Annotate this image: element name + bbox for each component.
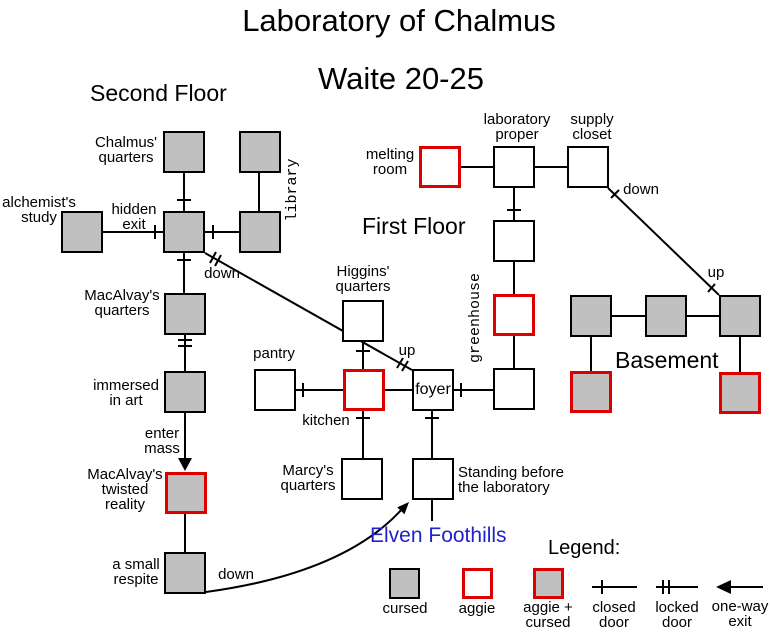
- room-label-standing-before-laboratory: Standing before the laboratory: [458, 465, 578, 495]
- edge-chalmus-hub: [177, 173, 191, 211]
- room-label-supply-closet: supply closet: [556, 112, 628, 142]
- room-label-greenhouse: greenhouse: [468, 263, 484, 373]
- room-label-chalmus-quarters: Chalmus' quarters: [90, 135, 162, 165]
- edge-foyer-standing: [425, 411, 439, 458]
- exit-label-respite-down: down: [213, 567, 259, 582]
- room-label-kitchen: kitchen: [299, 413, 353, 428]
- legend-label-aggie: aggie: [446, 601, 508, 616]
- mud-area-map: Laboratory of Chalmus Waite 20-25 Second…: [0, 0, 770, 632]
- map-title: Laboratory of Chalmus: [14, 4, 770, 37]
- room-basement-3: [719, 295, 761, 337]
- room-greenhouse-north: [493, 220, 535, 262]
- exit-label-closet-down: down: [618, 182, 664, 197]
- edge-pantry-kitchen: [296, 383, 343, 397]
- room-label-a-small-respite: a small respite: [100, 557, 172, 587]
- room-laboratory-proper: [493, 146, 535, 188]
- room-marcys-quarters: [341, 458, 383, 500]
- edge-macalvays-immersed-locked: [178, 335, 192, 371]
- room-greenhouse-south: [493, 368, 535, 410]
- exit-label-basement-up: up: [700, 265, 732, 280]
- room-macalvays-twisted-reality: [165, 472, 207, 514]
- room-pantry: [254, 369, 296, 411]
- edge-kitchen-marcys: [356, 411, 370, 458]
- floor-label-second: Second Floor: [90, 81, 227, 105]
- room-label-pantry: pantry: [250, 346, 298, 361]
- room-basement-2: [645, 295, 687, 337]
- room-basement-1: [570, 295, 612, 337]
- room-label-marcys-quarters: Marcy's quarters: [272, 463, 344, 493]
- room-macalvays-quarters: [164, 293, 206, 335]
- floor-label-basement: Basement: [615, 348, 719, 372]
- room-label-higgins-quarters: Higgins' quarters: [326, 264, 400, 294]
- legend-heading: Legend:: [548, 537, 620, 560]
- exit-label-second-floor-down: down: [200, 266, 244, 281]
- legend-label-one-way-exit: one-way exit: [703, 599, 770, 629]
- exit-label-enter-mass: enter mass: [126, 426, 198, 456]
- room-label-foyer: foyer: [414, 371, 452, 408]
- room-label-alchemists-study: alchemist's study: [0, 195, 78, 225]
- edge-hub-macalvays: [177, 253, 191, 293]
- legend-closed-door-symbol: [592, 580, 637, 594]
- room-basement-5: [719, 372, 761, 414]
- room-higgins-quarters: [342, 300, 384, 342]
- room-label-laboratory-proper: laboratory proper: [478, 112, 556, 142]
- room-library-upper: [239, 131, 281, 173]
- room-label-melting-room: melting room: [354, 147, 426, 177]
- room-basement-4: [570, 371, 612, 413]
- legend-swatch-aggie: [462, 568, 493, 599]
- room-label-macalvays-quarters: MacAlvay's quarters: [82, 288, 162, 318]
- legend-swatch-cursed: [389, 568, 420, 599]
- legend-label-locked-door: locked door: [646, 600, 708, 630]
- room-kitchen: [343, 369, 385, 411]
- legend-locked-door-symbol: [656, 580, 698, 594]
- edge-hub-library: [205, 225, 239, 239]
- legend-label-aggie-cursed: aggie + cursed: [511, 600, 585, 630]
- room-greenhouse: [493, 294, 535, 336]
- room-standing-before-laboratory: [412, 458, 454, 500]
- arrowhead-one-way-legend: [716, 580, 731, 594]
- legend-label-closed-door: closed door: [583, 600, 645, 630]
- edge-foyer-greenhouse-south: [454, 383, 493, 397]
- room-chalmus-quarters: [163, 131, 205, 173]
- room-hidden-exit-hub: [163, 211, 205, 253]
- arrowhead-enter-mass: [178, 458, 192, 471]
- edge-laboratory-greenhouse-north: [507, 188, 521, 220]
- room-label-library: library: [285, 140, 301, 240]
- legend-swatch-aggie-cursed: [533, 568, 564, 599]
- room-foyer: foyer: [412, 369, 454, 411]
- room-supply-closet: [567, 146, 609, 188]
- exterior-area-label: Elven Foothills: [370, 524, 507, 548]
- room-label-macalvays-twisted-reality: MacAlvay's twisted reality: [85, 467, 165, 512]
- exit-label-foyer-up: up: [392, 343, 422, 358]
- room-immersed-in-art: [164, 371, 206, 413]
- floor-label-first: First Floor: [362, 214, 466, 238]
- legend-label-cursed: cursed: [374, 601, 436, 616]
- exit-label-hidden-exit: hidden exit: [106, 202, 162, 232]
- room-label-immersed-in-art: immersed in art: [88, 378, 164, 408]
- room-library-lower: [239, 211, 281, 253]
